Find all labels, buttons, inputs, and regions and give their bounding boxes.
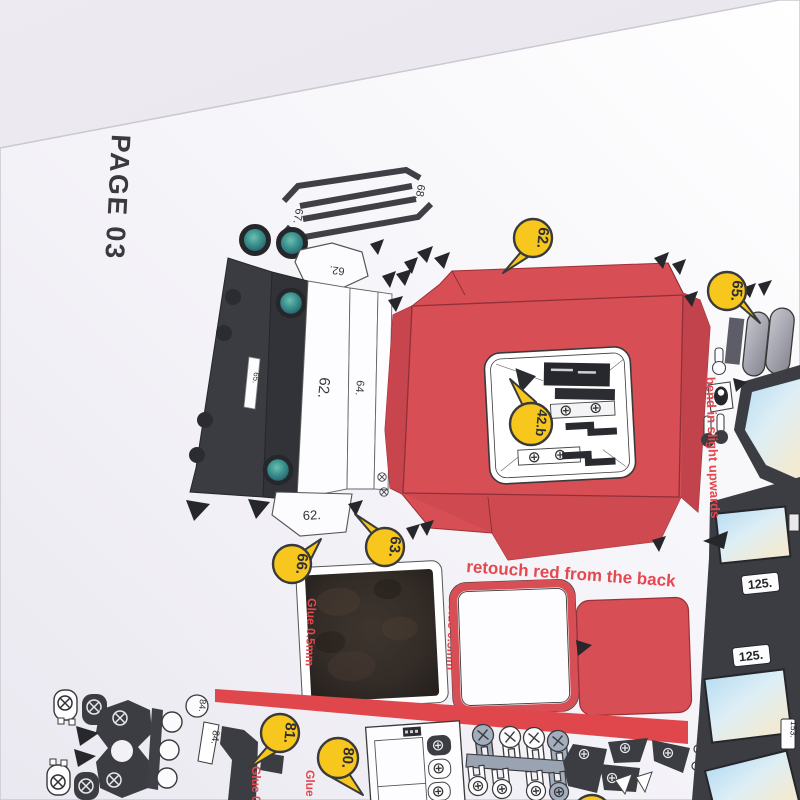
svg-text:42.b: 42.b bbox=[533, 409, 550, 437]
papercraft-sheet-photo: PAGE 03 67. 68. 62. 65. 62. 64. bbox=[0, 0, 800, 800]
svg-text:80.: 80. bbox=[338, 747, 357, 769]
label-125-lower: 125. bbox=[732, 644, 771, 667]
svg-text:65.: 65. bbox=[727, 280, 746, 302]
glue-label: Glue 0.5mm bbox=[303, 770, 317, 800]
strip-62-label: 62. bbox=[314, 377, 333, 399]
tab-62-top-label: 62. bbox=[329, 263, 346, 277]
svg-text:66.: 66. bbox=[292, 553, 311, 575]
svg-text:125.: 125. bbox=[738, 648, 764, 664]
slot-65-label: 65. bbox=[251, 372, 261, 384]
label-125-upper: 125. bbox=[741, 572, 780, 595]
circled-84-label: 84. bbox=[197, 699, 208, 712]
strip-64-label: 64. bbox=[353, 380, 366, 396]
svg-text:153.: 153. bbox=[788, 721, 799, 738]
svg-text:62.: 62. bbox=[533, 227, 552, 249]
wheel-icon bbox=[265, 457, 291, 483]
photo-scene: PAGE 03 67. 68. 62. 65. 62. 64. bbox=[0, 0, 800, 800]
part-white-box-80 bbox=[366, 721, 466, 800]
svg-text:125.: 125. bbox=[747, 576, 773, 592]
door-window-glass bbox=[704, 669, 791, 742]
svg-text:63.: 63. bbox=[385, 536, 404, 558]
part-red-square bbox=[576, 597, 692, 716]
svg-text:81.: 81. bbox=[280, 722, 299, 744]
roof-window bbox=[484, 346, 637, 484]
tab-62-bottom-label: 62. bbox=[302, 507, 321, 523]
wheel-icon bbox=[242, 227, 269, 254]
glue-label: Glue 0.5mm bbox=[303, 598, 319, 666]
wheel-icon bbox=[278, 290, 304, 316]
glue-label: Glue 0.5mm bbox=[249, 766, 263, 800]
part-red-frame bbox=[449, 579, 580, 715]
box-84-label: 84. bbox=[208, 730, 221, 745]
